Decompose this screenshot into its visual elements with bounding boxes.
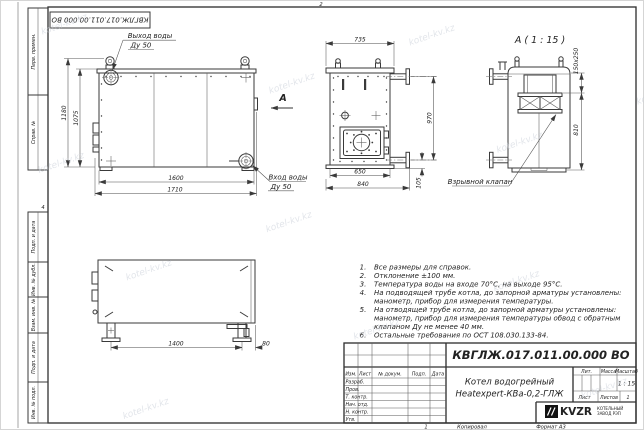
strip-podp-data-1: Подп. и дата bbox=[31, 221, 37, 254]
masshtab-label: Масштаб bbox=[615, 369, 638, 375]
note-number: 2. bbox=[360, 272, 367, 280]
bottom-view: 1400 80 bbox=[92, 260, 270, 351]
note-line: Все размеры для справок. bbox=[374, 264, 471, 272]
strip-vzam-inv: Взам. инв. № bbox=[31, 299, 37, 332]
note-line: манометр, прибор для измерения температу… bbox=[374, 315, 621, 323]
strip-perv-primen: Перв. примен. bbox=[31, 33, 37, 69]
dim-650: 650 bbox=[354, 169, 366, 176]
drawing-sheet: 2 4 Перв. примен. Справ. № Подп. и дата … bbox=[0, 0, 644, 430]
strip-inv-dubl: Инв. № дубл. bbox=[31, 263, 37, 296]
bolt-dots-front bbox=[101, 76, 251, 161]
dim-1180: 1180 bbox=[61, 105, 68, 120]
sheet-frame: 2 4 Перв. примен. Справ. № Подп. и дата … bbox=[1, 1, 644, 430]
dim-1075: 1075 bbox=[73, 110, 80, 125]
col-data: Дата bbox=[431, 372, 444, 378]
note-line: На подводящей трубе котла, до запорной а… bbox=[374, 289, 622, 297]
dim-1400: 1400 bbox=[168, 341, 183, 348]
sheets-value: 1 bbox=[626, 395, 629, 401]
note-line: Температура воды на входе 70°С, на выход… bbox=[374, 281, 562, 289]
note-number: 5. bbox=[360, 306, 367, 314]
row-nachotd: Нач. отд. bbox=[346, 402, 369, 408]
scale-value: 1 : 15 bbox=[618, 380, 635, 387]
bolt-dots-side bbox=[333, 76, 387, 162]
zone-top-label: 2 bbox=[319, 2, 322, 8]
section-view: А ( 1 : 15 ) bbox=[448, 35, 585, 186]
dim-1710: 1710 bbox=[167, 187, 182, 194]
row-razrab: Разраб. bbox=[346, 380, 365, 386]
sheets-label: Листов bbox=[599, 395, 618, 401]
left-strip-lower: Подп. и дата Инв. № дубл. Взам. инв. № П… bbox=[28, 212, 48, 423]
format-label: Формат А3 bbox=[536, 425, 566, 430]
lit-label: Лит. bbox=[580, 369, 592, 375]
dim-105: 105 bbox=[416, 177, 423, 189]
dim-840: 840 bbox=[357, 181, 369, 188]
note-line: клапаном Ду не менее 40 мм. bbox=[374, 323, 484, 331]
note-number: 6. bbox=[360, 332, 367, 340]
note-number: 1. bbox=[360, 264, 367, 272]
row-nkontr: Н. контр. bbox=[346, 410, 369, 416]
dim-80: 80 bbox=[262, 341, 270, 348]
note-number: 3. bbox=[360, 281, 367, 289]
outlet-dn-label: Ду 50 bbox=[130, 42, 152, 50]
strip-podp-data-2: Подп. и дата bbox=[31, 341, 37, 374]
note-line: Остальные требования по ОСТ 108.030.133-… bbox=[374, 332, 549, 340]
top-stamp: КВГЛЖ.017.011.00.000 ВО bbox=[50, 12, 150, 28]
product-name-line1: Котел водогрейный bbox=[465, 378, 555, 388]
inlet-dn-label: Ду 50 bbox=[270, 183, 292, 191]
inlet-label: Вход воды bbox=[268, 174, 308, 182]
dim-810: 810 bbox=[573, 124, 580, 136]
side-view: 735 970 650 840 105 bbox=[326, 37, 437, 191]
dim-970: 970 bbox=[427, 112, 434, 124]
section-title: А ( 1 : 15 ) bbox=[514, 35, 565, 46]
note-line: На отводящей трубе котла, до запорной ар… bbox=[374, 306, 616, 314]
drawing-canvas: 2 4 Перв. примен. Справ. № Подп. и дата … bbox=[0, 0, 644, 430]
company-name-line2: ЗАВОД РЭП bbox=[597, 411, 621, 416]
logo-mark-icon bbox=[545, 405, 558, 418]
company-logo: KVZR КОТЕЛЬНЫЙ ЗАВОД РЭП bbox=[545, 405, 623, 418]
row-utv: Утв. bbox=[346, 417, 356, 423]
note-number: 4. bbox=[360, 289, 367, 297]
copied-label: Копировал bbox=[457, 425, 487, 430]
view-arrow-letter: А bbox=[278, 93, 286, 104]
strip-sprav-no: Справ. № bbox=[31, 121, 37, 144]
zone-bottom-num: 1 bbox=[424, 425, 427, 430]
front-view: 1180 1075 1600 1710 Выход воды Ду 50 Вхо… bbox=[61, 32, 308, 196]
massa-label: Масса bbox=[601, 369, 616, 375]
top-stamp-number: КВГЛЖ.017.011.00.000 ВО bbox=[51, 15, 148, 23]
dim-150x250: 150x250 bbox=[573, 48, 580, 75]
title-block: КВГЛЖ.017.011.00.000 ВО Котел водогрейны… bbox=[344, 343, 638, 423]
col-list: Лист bbox=[358, 372, 371, 378]
burner-plate bbox=[340, 127, 389, 159]
dim-735: 735 bbox=[354, 37, 366, 44]
product-name-line2: Heatexpert-КВа-0,2-ГЛЖ bbox=[456, 390, 565, 400]
logo-text: KVZR bbox=[560, 406, 592, 418]
col-izm: Изм. bbox=[345, 372, 356, 378]
row-tkontr: Т. контр. bbox=[346, 395, 368, 401]
left-strip-upper: Перв. примен. Справ. № bbox=[28, 8, 48, 170]
sheet-label: Лист bbox=[577, 395, 590, 401]
note-line: Отклонение ±100 мм. bbox=[374, 272, 455, 280]
valve-label: Взрывной клапан bbox=[448, 178, 513, 186]
outlet-label: Выход воды bbox=[128, 32, 173, 40]
col-podp: Подп. bbox=[412, 372, 427, 378]
row-prov: Пров. bbox=[346, 387, 360, 393]
strip-inv-podl: Инв. № подл. bbox=[31, 386, 37, 419]
doc-number: КВГЛЖ.017.011.00.000 ВО bbox=[452, 348, 629, 362]
outlet-flange bbox=[102, 69, 120, 87]
explosion-valve bbox=[518, 93, 562, 113]
notes-block: 1. Все размеры для справок. 2. Отклонени… bbox=[360, 264, 622, 340]
col-dokum: № докум. bbox=[377, 372, 402, 378]
zone-left-label: 4 bbox=[41, 205, 44, 211]
dim-1600: 1600 bbox=[168, 175, 183, 182]
note-line: манометр, прибор для измерения температу… bbox=[374, 298, 553, 306]
